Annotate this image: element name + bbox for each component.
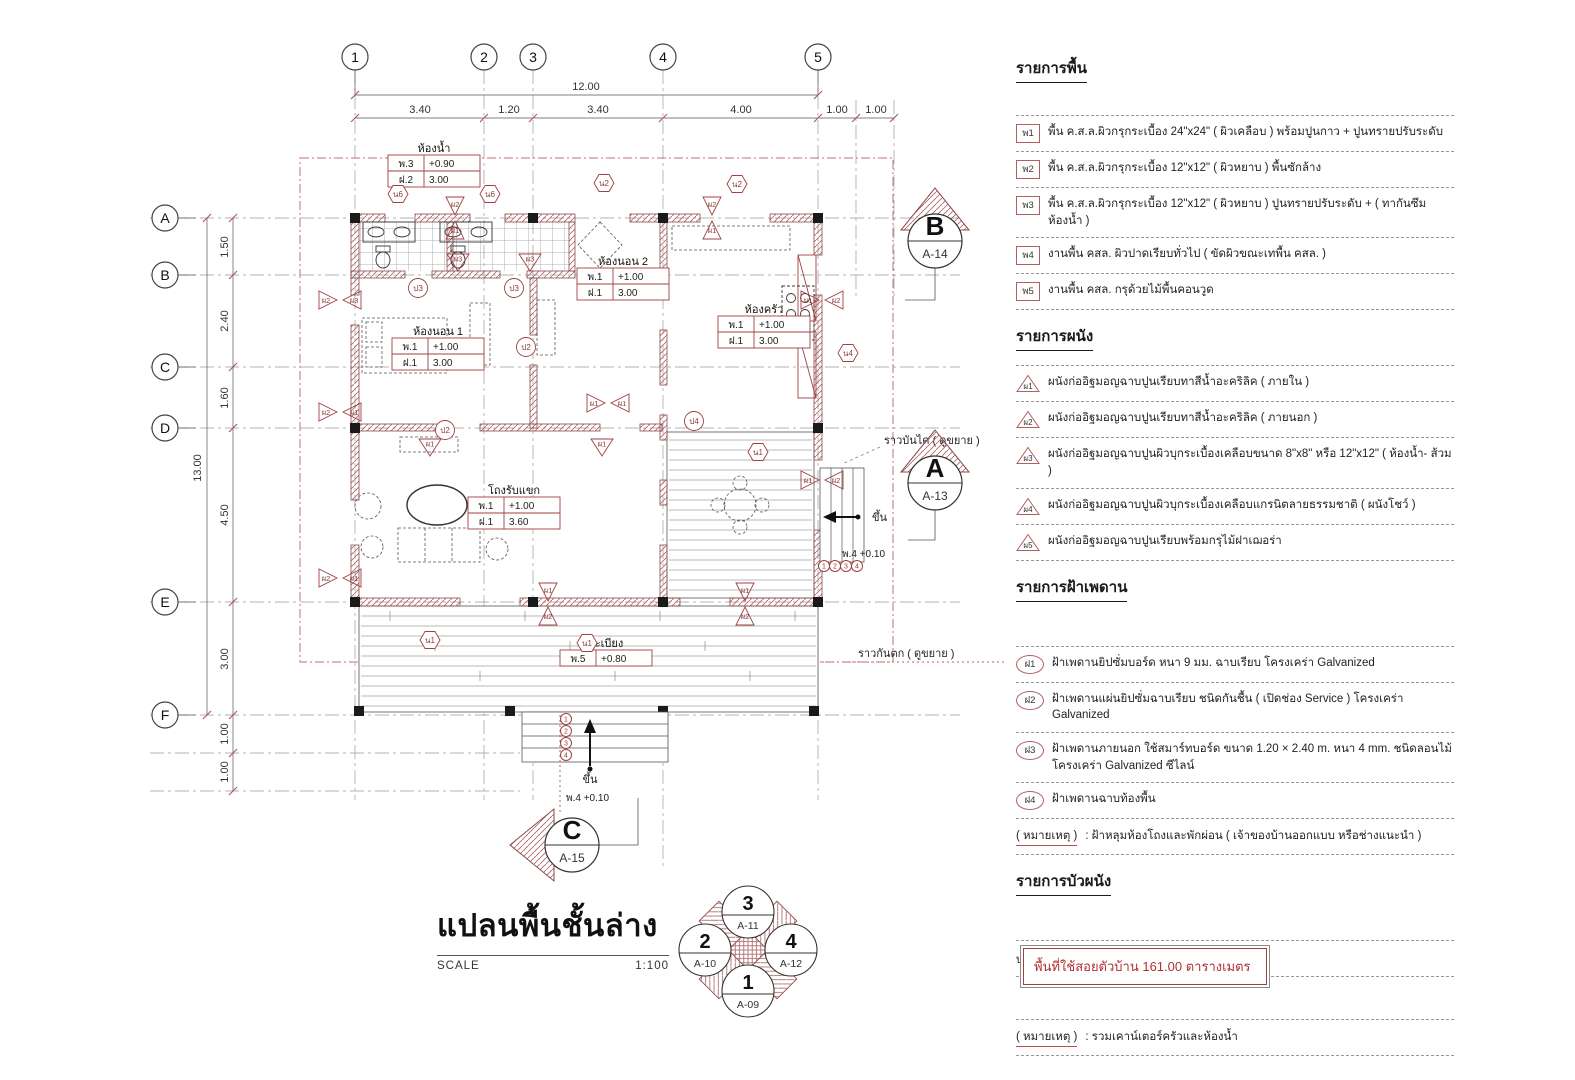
- plan-text: ฝ.1: [729, 336, 744, 347]
- note-label: ( หมายเหตุ ): [1016, 1028, 1077, 1047]
- plan-text: พ.1: [588, 272, 603, 283]
- plan-text: ฝ.1: [588, 288, 603, 299]
- plan-text: ป4: [689, 417, 699, 426]
- post: [350, 213, 360, 223]
- dashed-divider: [1016, 488, 1454, 489]
- dashed-divider: [1016, 273, 1454, 274]
- plan-text: น4: [843, 349, 853, 358]
- plan-text: พ.1: [729, 320, 744, 331]
- svg-text:ผ2: ผ2: [1023, 418, 1033, 427]
- plan-text: 1.50: [219, 236, 231, 257]
- item-text: ฝ้าเพดานยิปซั่มบอร์ด หนา 9 มม. ฉาบเรียบ …: [1052, 655, 1454, 672]
- plan-text: ป3: [509, 284, 519, 293]
- plan-text: พ.1: [403, 342, 418, 353]
- title-block: แปลนพื้นชั้นล่าง SCALE 1:100: [437, 900, 669, 972]
- ceiling-list-heading: รายการฝ้าเพดาน: [1016, 575, 1127, 602]
- item-tag: พ2: [1016, 160, 1040, 179]
- plan-text: ผ1: [804, 476, 813, 485]
- list-item: พ2พื้น ค.ส.ล.ผิวกรุกระเบื้อง 12"x12" ( ผ…: [1016, 158, 1454, 181]
- item-tag: พ4: [1016, 246, 1040, 265]
- item-tag: ฝ4: [1016, 791, 1044, 810]
- plan-text: 4.00: [730, 104, 751, 116]
- dashed-divider: [1016, 854, 1454, 855]
- svg-text:A-11: A-11: [737, 920, 759, 932]
- floor-list-items: พ1พื้น ค.ส.ล.ผิวกรุกระเบื้อง 24"x24" ( ผ…: [1016, 115, 1454, 310]
- plan-text: 3: [564, 741, 568, 748]
- item-text: พื้น ค.ส.ล.ผิวกรุกระเบื้อง 12"x12" ( ผิว…: [1048, 196, 1454, 229]
- plan-text: ผ1: [350, 574, 359, 583]
- ceiling-list-items: ฝ1ฝ้าเพดานยิปซั่มบอร์ด หนา 9 มม. ฉาบเรีย…: [1016, 646, 1454, 856]
- drawing-sheet: 12345ABCDEF12.003.401.203.404.001.001.00…: [0, 0, 1575, 1080]
- post: [813, 423, 823, 433]
- list-item: ผ1ผนังก่ออิฐมอญฉาบปูนเรียบทาสีน้ำอะคริลิ…: [1016, 372, 1454, 395]
- dashed-divider: [1016, 682, 1454, 683]
- plan-text: B: [160, 267, 169, 283]
- plan-text: D: [160, 420, 170, 436]
- item-text: พื้น ค.ส.ล.ผิวกรุกระเบื้อง 24"x24" ( ผิว…: [1048, 124, 1454, 141]
- front-stair: [522, 712, 668, 772]
- list-item: ฝ4ฝ้าเพดานฉาบท้องพื้น: [1016, 789, 1454, 812]
- plan-text: +1.00: [618, 272, 644, 283]
- plan-text: ผ2: [832, 476, 841, 485]
- item-text: ฝ้าเพดานแผ่นยิปซั่มฉาบเรียบ ชนิดกันชื้น …: [1052, 691, 1454, 724]
- key-plan-symbol: 3A-112A-104A-121A-09: [679, 886, 817, 1017]
- plan-text: ผ1: [598, 440, 607, 449]
- plan-text: พ.4 +0.10: [842, 549, 885, 560]
- plan-text: ผ2: [451, 200, 460, 209]
- plan-text: น1: [753, 448, 763, 457]
- list-item: พ4งานพื้น คสล. ผิวปาดเรียบทั่วไป ( ขัดผิ…: [1016, 244, 1454, 267]
- svg-text:A-09: A-09: [737, 999, 759, 1011]
- post: [505, 706, 515, 716]
- plan-text: 2: [564, 729, 568, 736]
- dashed-divider: [1016, 151, 1454, 152]
- plan-text: ผ3: [350, 296, 359, 305]
- floor-list-heading: รายการพื้น: [1016, 56, 1087, 83]
- svg-text:A-12: A-12: [780, 958, 802, 970]
- wall-type-triangle-tag: ผ2: [1016, 410, 1040, 429]
- item-tag: ฝ2: [1016, 691, 1044, 710]
- list-item: ผ5ผนังก่ออิฐมอญฉาบปูนเรียบพร้อมกรุไม้ฝาเ…: [1016, 531, 1454, 554]
- drawing-title: แปลนพื้นชั้นล่าง: [437, 900, 669, 950]
- plan-text: ห้องครัว: [745, 304, 784, 316]
- post: [528, 213, 538, 223]
- dashed-divider: [1016, 437, 1454, 438]
- wall-type-triangle-tag: ผ5: [1016, 533, 1040, 552]
- plan-text: น6: [485, 190, 495, 199]
- wall-list-items: ผ1ผนังก่ออิฐมอญฉาบปูนเรียบทาสีน้ำอะคริลิ…: [1016, 365, 1454, 560]
- plan-text: ฝ.1: [479, 517, 494, 528]
- dashed-divider: [1016, 187, 1454, 188]
- plan-text: 2: [833, 564, 837, 571]
- svg-text:ผ5: ผ5: [1023, 541, 1033, 550]
- plan-text: 3.00: [618, 288, 638, 299]
- dashed-divider: [1016, 940, 1454, 941]
- plan-text: A-13: [922, 489, 948, 503]
- plan-text: A-14: [922, 247, 948, 261]
- plan-text: ผ2: [322, 574, 331, 583]
- plan-text: พ.1: [479, 501, 494, 512]
- plan-text: ผ1: [544, 586, 553, 595]
- list-item: ฝ2ฝ้าเพดานแผ่นยิปซั่มฉาบเรียบ ชนิดกันชื้…: [1016, 689, 1454, 726]
- plan-text: ฝ.2: [399, 175, 414, 186]
- plan-text: 1.20: [498, 104, 519, 116]
- item-tag: พ3: [1016, 196, 1040, 215]
- list-item: พ5งานพื้น คสล. กรุด้วยไม้พื้นคอนวูด: [1016, 280, 1454, 303]
- plan-text: ผ3: [526, 255, 535, 264]
- post: [350, 597, 360, 607]
- dashed-divider: [1016, 818, 1454, 819]
- dashed-divider: [1016, 115, 1454, 116]
- plan-text: +1.00: [433, 342, 459, 353]
- post: [354, 706, 364, 716]
- plan-text: พ.5: [571, 654, 586, 665]
- usable-area-box: พื้นที่ใช้สอยตัวบ้าน 161.00 ตารางเมตร: [1020, 945, 1270, 988]
- dashed-divider: [1016, 524, 1454, 525]
- plan-text: ผ1: [451, 226, 460, 235]
- item-tag: ฝ1: [1016, 655, 1044, 674]
- svg-text:ผ3: ผ3: [1023, 454, 1033, 463]
- plan-text: 3.60: [509, 517, 529, 528]
- plan-text: ผ1: [618, 399, 627, 408]
- svg-text:1: 1: [742, 972, 753, 994]
- svg-text:2: 2: [699, 931, 710, 953]
- plan-text: ผ2: [322, 408, 331, 417]
- item-tag: ฝ3: [1016, 741, 1044, 760]
- item-text: งานพื้น คสล. กรุด้วยไม้พื้นคอนวูด: [1048, 282, 1454, 299]
- title-underline: [437, 955, 669, 956]
- plan-text: 2.40: [219, 310, 231, 331]
- plan-text: ขึ้น: [872, 509, 888, 524]
- list-item: ผ2ผนังก่ออิฐมอญฉาบปูนเรียบทาสีน้ำอะคริลิ…: [1016, 408, 1454, 431]
- svg-text:ผ4: ผ4: [1023, 505, 1033, 514]
- plan-text: ผ1: [590, 399, 599, 408]
- wall-list-heading: รายการผนัง: [1016, 324, 1093, 351]
- svg-text:3: 3: [742, 893, 753, 915]
- plan-text: ผ2: [322, 296, 331, 305]
- plan-text: F: [161, 707, 170, 723]
- item-text: พื้น ค.ส.ล.ผิวกรุกระเบื้อง 12"x12" ( ผิว…: [1048, 160, 1454, 177]
- dashed-divider: [1016, 560, 1454, 561]
- dashed-divider: [1016, 732, 1454, 733]
- plan-text: ป2: [521, 343, 531, 352]
- note-text: : รวมเคาน์เตอร์ครัวและห้องน้ำ: [1085, 1028, 1237, 1046]
- plan-text: 3.40: [587, 104, 608, 116]
- plan-text: น1: [582, 639, 592, 648]
- scale-label: SCALE: [437, 960, 480, 972]
- plan-text: 2: [480, 49, 488, 65]
- svg-text:4: 4: [785, 931, 797, 953]
- plan-text: 1.00: [865, 104, 886, 116]
- item-text: ฝ้าเพดานฉาบท้องพื้น: [1052, 791, 1454, 808]
- plan-text: 3: [529, 49, 537, 65]
- plan-text: โถงรับแขก: [488, 483, 540, 497]
- plan-text: ผ1: [426, 440, 435, 449]
- plan-text: A-15: [559, 851, 585, 865]
- item-text: ผนังก่ออิฐมอญฉาบปูนผิวบุกระเบื้องเคลือบแ…: [1048, 497, 1454, 514]
- item-text: ผนังก่ออิฐมอญฉาบปูนผิวบุกระเบื้องเคลือบข…: [1048, 446, 1454, 479]
- note-label: ( หมายเหตุ ): [1016, 827, 1077, 846]
- post: [528, 597, 538, 607]
- plan-text: 3.00: [429, 175, 449, 186]
- plan-text: 1: [822, 564, 826, 571]
- plan-text: 1.60: [219, 387, 231, 408]
- svg-text:ผ1: ผ1: [1023, 382, 1033, 391]
- list-item: ผ4ผนังก่ออิฐมอญฉาบปูนผิวบุกระเบื้องเคลือ…: [1016, 495, 1454, 518]
- plan-text: +1.00: [509, 501, 535, 512]
- floor-list-section: รายการพื้น พ1พื้น ค.ส.ล.ผิวกรุกระเบื้อง …: [1016, 56, 1454, 310]
- list-item: ฝ1ฝ้าเพดานยิปซั่มบอร์ด หนา 9 มม. ฉาบเรีย…: [1016, 653, 1454, 676]
- wall-list-section: รายการผนัง ผ1ผนังก่ออิฐมอญฉาบปูนเรียบทาส…: [1016, 324, 1454, 560]
- plan-text: 1: [351, 49, 359, 65]
- item-text: ผนังก่ออิฐมอญฉาบปูนเรียบทาสีน้ำอะคริลิค …: [1048, 374, 1454, 391]
- wall-type-triangle-tag: ผ1: [1016, 374, 1040, 393]
- dashed-divider: [1016, 365, 1454, 366]
- post: [350, 423, 360, 433]
- plan-text: C: [563, 815, 582, 845]
- plan-text: 3.00: [433, 358, 453, 369]
- plan-text: 4: [564, 753, 568, 760]
- svg-text:A-10: A-10: [694, 958, 716, 970]
- dashed-divider: [1016, 237, 1454, 238]
- list-item: พ3พื้น ค.ส.ล.ผิวกรุกระเบื้อง 12"x12" ( ผ…: [1016, 194, 1454, 231]
- side-deck: [667, 432, 814, 598]
- scale-value: 1:100: [635, 960, 669, 972]
- plan-text: B: [926, 211, 945, 241]
- post: [658, 213, 668, 223]
- item-text: ผนังก่ออิฐมอญฉาบปูนเรียบทาสีน้ำอะคริลิค …: [1048, 410, 1454, 427]
- plan-text: น1: [425, 636, 435, 645]
- plan-text: 1.00: [826, 104, 847, 116]
- plan-text: 3: [844, 564, 848, 571]
- note-text: : ฝ้าหลุมห้องโถงและพักผ่อน ( เจ้าของบ้าน…: [1085, 827, 1421, 845]
- plan-text: 1: [564, 717, 568, 724]
- plan-text: 13.00: [192, 454, 204, 482]
- plan-text: +0.80: [601, 654, 627, 665]
- plan-text: ห้องนอน 2: [598, 256, 648, 268]
- list-item: ผ3ผนังก่ออิฐมอญฉาบปูนผิวบุกระเบื้องเคลือ…: [1016, 444, 1454, 481]
- item-text: งานพื้น คสล. ผิวปาดเรียบทั่วไป ( ขัดผิวข…: [1048, 246, 1454, 263]
- plan-text: ผ2: [832, 296, 841, 305]
- plan-text: ป3: [413, 284, 423, 293]
- item-tag: พ1: [1016, 124, 1040, 143]
- plan-text: 5: [814, 49, 822, 65]
- plan-text: C: [160, 359, 170, 375]
- plan-text: ผ1: [741, 586, 750, 595]
- plan-text: A: [926, 453, 945, 483]
- plan-text: +1.00: [759, 320, 785, 331]
- plan-text: ผ3: [454, 255, 463, 264]
- wall-type-triangle-tag: ผ3: [1016, 446, 1040, 465]
- spec-panel: รายการพื้น พ1พื้น ค.ส.ล.ผิวกรุกระเบื้อง …: [1016, 56, 1454, 1070]
- plan-text: 3.00: [219, 648, 231, 669]
- post: [813, 597, 823, 607]
- plan-text: ป2: [440, 426, 450, 435]
- plan-text: ฝ.1: [403, 358, 418, 369]
- plan-text: พ.4 +0.10: [566, 793, 609, 804]
- plan-text: น2: [599, 179, 609, 188]
- item-text: ผนังก่ออิฐมอญฉาบปูนเรียบพร้อมกรุไม้ฝาเฌอ…: [1048, 533, 1454, 550]
- plan-text: น6: [393, 190, 403, 199]
- plan-text: 4.50: [219, 504, 231, 525]
- bathroom-tile-floor: [359, 222, 572, 271]
- plan-text: 12.00: [572, 81, 600, 93]
- list-item: พ1พื้น ค.ส.ล.ผิวกรุกระเบื้อง 24"x24" ( ผ…: [1016, 122, 1454, 145]
- dashed-divider: [1016, 646, 1454, 647]
- plan-text: 3.40: [409, 104, 430, 116]
- plan-text: ผ1: [350, 408, 359, 417]
- plan-text: 4: [659, 49, 667, 65]
- dashed-divider: [1016, 1019, 1454, 1020]
- dashed-divider: [1016, 782, 1454, 783]
- plan-text: ห้องน้ำ: [418, 140, 451, 155]
- usable-area-text: พื้นที่ใช้สอยตัวบ้าน 161.00 ตารางเมตร: [1023, 948, 1267, 985]
- list-note: ( หมายเหตุ ) : รวมเคาน์เตอร์ครัวและห้องน…: [1016, 1026, 1454, 1049]
- plan-text: A: [160, 210, 170, 226]
- plan-text: 3.00: [759, 336, 779, 347]
- item-tag: พ5: [1016, 282, 1040, 301]
- wall-type-triangle-tag: ผ4: [1016, 497, 1040, 516]
- plan-text: ขึ้น: [582, 771, 598, 786]
- plan-text: +0.90: [429, 159, 455, 170]
- post: [658, 597, 668, 607]
- plan-text: ราวกันตก ( ดูขยาย ): [858, 648, 954, 660]
- molding-list-heading: รายการบัวผนัง: [1016, 869, 1111, 896]
- plan-text: E: [160, 594, 169, 610]
- side-stair: [820, 468, 864, 562]
- dashed-divider: [1016, 309, 1454, 310]
- plan-text: ผ2: [708, 200, 717, 209]
- dashed-divider: [1016, 1055, 1454, 1056]
- dashed-divider: [1016, 401, 1454, 402]
- item-text: ฝ้าเพดานภายนอก ใช้สมาร์ทบอร์ด ขนาด 1.20 …: [1052, 741, 1454, 774]
- plan-text: ผ1: [708, 226, 717, 235]
- list-item: ฝ3ฝ้าเพดานภายนอก ใช้สมาร์ทบอร์ด ขนาด 1.2…: [1016, 739, 1454, 776]
- plan-text: ห้องนอน 1: [413, 326, 463, 338]
- plan-text: ผ1: [804, 296, 813, 305]
- plan-text: ผ2: [544, 612, 553, 621]
- plan-text: 4: [855, 564, 859, 571]
- post: [813, 213, 823, 223]
- plan-text: 1.00: [219, 761, 231, 782]
- plan-text: 1.00: [219, 723, 231, 744]
- plan-text: น2: [732, 180, 742, 189]
- list-note: ( หมายเหตุ ) : ฝ้าหลุมห้องโถงและพักผ่อน …: [1016, 825, 1454, 848]
- plan-text: ผ2: [741, 612, 750, 621]
- plan-text: พ.3: [399, 159, 414, 170]
- ceiling-list-section: รายการฝ้าเพดาน ฝ1ฝ้าเพดานยิปซั่มบอร์ด หน…: [1016, 575, 1454, 856]
- post: [809, 706, 819, 716]
